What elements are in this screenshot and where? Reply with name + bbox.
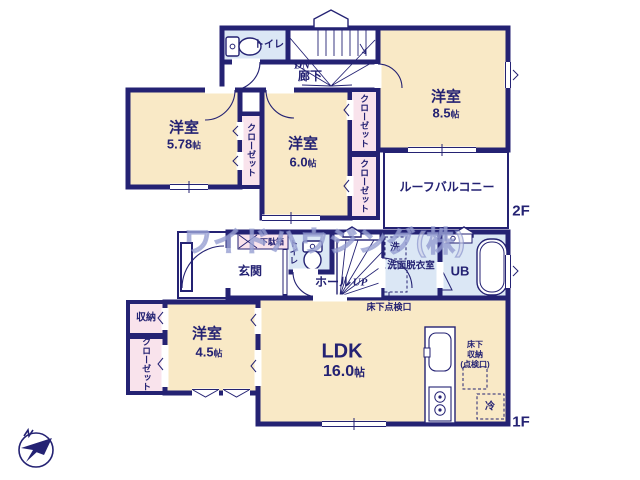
bedroom-45-size-unit: 帖 bbox=[214, 349, 223, 359]
bedroom-45-size-value: 4.5 bbox=[196, 345, 214, 360]
floor1-label: 1F bbox=[512, 413, 530, 430]
bath-label: UB bbox=[451, 265, 470, 280]
hall-label: ホール bbox=[315, 276, 351, 290]
ldk-name: LDK bbox=[321, 341, 362, 364]
washroom-label: 洗面脱衣室 bbox=[387, 262, 435, 273]
bedroom-578-size: 5.78帖 bbox=[167, 138, 201, 153]
bedroom-60-name: 洋室 bbox=[288, 135, 318, 152]
underfloor-hatch-label: 床下点検口 bbox=[366, 302, 411, 312]
ldk-size: 16.0帖 bbox=[323, 363, 365, 381]
closet-c-label: クローゼット bbox=[359, 159, 369, 213]
roof-balcony-label: ルーフバルコニー bbox=[399, 181, 494, 195]
floor2-label: 2F bbox=[512, 202, 530, 219]
ldk-size-value: 16.0 bbox=[323, 363, 354, 380]
floorplan-page: トイレ DN 廊下 洋室 8.5帖 洋室 5.78帖 洋室 6.0帖 クローゼッ… bbox=[0, 0, 640, 480]
refrigerator-label: 冷 bbox=[485, 401, 495, 413]
bedroom-85-size-value: 8.5 bbox=[433, 106, 451, 121]
closet-1f-label: クローゼット bbox=[141, 337, 151, 391]
underfloor-storage-line1: 床下 bbox=[460, 340, 489, 350]
bedroom-85-size-unit: 帖 bbox=[451, 110, 460, 120]
ldk-size-unit: 帖 bbox=[354, 367, 365, 379]
underfloor-storage-line3: (点検口) bbox=[460, 360, 489, 370]
compass-icon bbox=[19, 430, 53, 467]
underfloor-storage-line2: 収納 bbox=[460, 350, 489, 360]
bedroom-85-size: 8.5帖 bbox=[433, 107, 460, 122]
entrance-label: 玄関 bbox=[238, 265, 262, 279]
stairs-up-label: UP bbox=[353, 277, 368, 290]
underfloor-storage-label: 床下 収納 (点検口) bbox=[460, 340, 489, 370]
bedroom-60-size-unit: 帖 bbox=[308, 159, 317, 169]
toilet-2f-label: トイレ bbox=[254, 39, 284, 51]
bedroom-60-size: 6.0帖 bbox=[290, 156, 317, 171]
bedroom-45-name: 洋室 bbox=[192, 325, 222, 342]
bedroom-45-size: 4.5帖 bbox=[196, 346, 223, 361]
window-bath-right bbox=[505, 255, 519, 288]
closet-a-label: クローゼット bbox=[246, 123, 256, 177]
bedroom-60-size-value: 6.0 bbox=[290, 155, 308, 170]
window-85-right bbox=[505, 62, 519, 88]
bedroom-85-name: 洋室 bbox=[431, 88, 461, 105]
company-watermark: ワイドハウジング(株) bbox=[184, 220, 466, 260]
storage-1f-label: 収納 bbox=[136, 312, 156, 324]
closet-b-label: クローゼット bbox=[359, 94, 369, 148]
kitchen-counter-icon bbox=[424, 327, 455, 423]
bedroom-578-size-value: 5.78 bbox=[167, 137, 192, 152]
hallway-label: 廊下 bbox=[298, 70, 322, 84]
hall-alcove-2f bbox=[240, 90, 262, 114]
bathtub-icon bbox=[477, 239, 507, 295]
bedroom-578-size-unit: 帖 bbox=[192, 141, 201, 151]
roof-vent-icon bbox=[314, 10, 348, 28]
bedroom-578-name: 洋室 bbox=[169, 119, 199, 136]
